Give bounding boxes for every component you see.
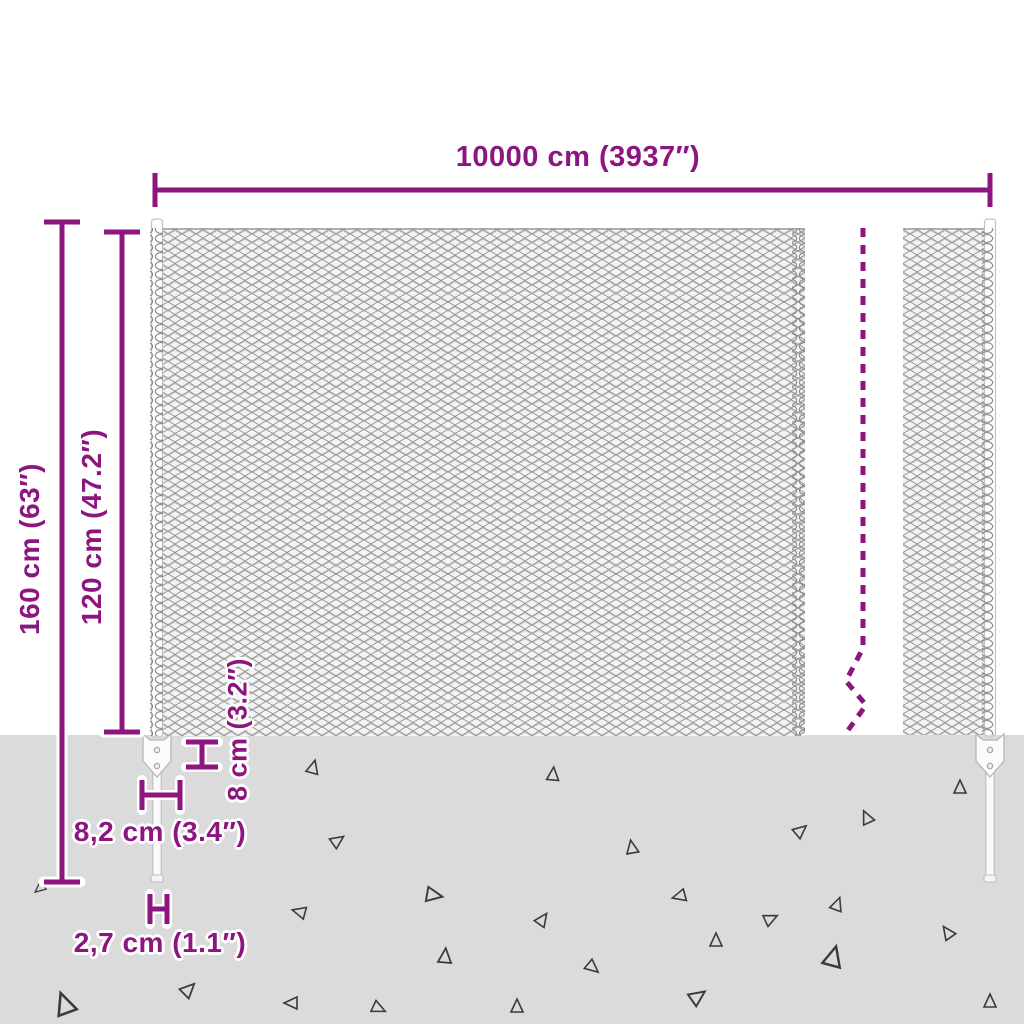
fence-mesh-right (903, 228, 987, 735)
break-dashed-line (844, 228, 866, 736)
post-diameter-label: 2,7 cm (1.1″) (10, 927, 310, 959)
fence-dimension-diagram: 10000 cm (3937″) 160 cm (63″) 120 cm (47… (0, 0, 1024, 1024)
dim-total-length (155, 173, 990, 207)
total-height-label: 160 cm (63″) (14, 349, 46, 749)
total-length-label: 10000 cm (3937″) (378, 141, 778, 174)
left-post-spike-foot (151, 875, 163, 882)
dim-mesh-height (104, 232, 140, 732)
anchor-plate-width-label: 8,2 cm (3.4″) (10, 816, 310, 848)
mesh-height-label: 120 cm (47.2″) (76, 327, 108, 727)
right-post-ground-spike (986, 772, 994, 878)
right-post-spike-foot (984, 875, 996, 882)
